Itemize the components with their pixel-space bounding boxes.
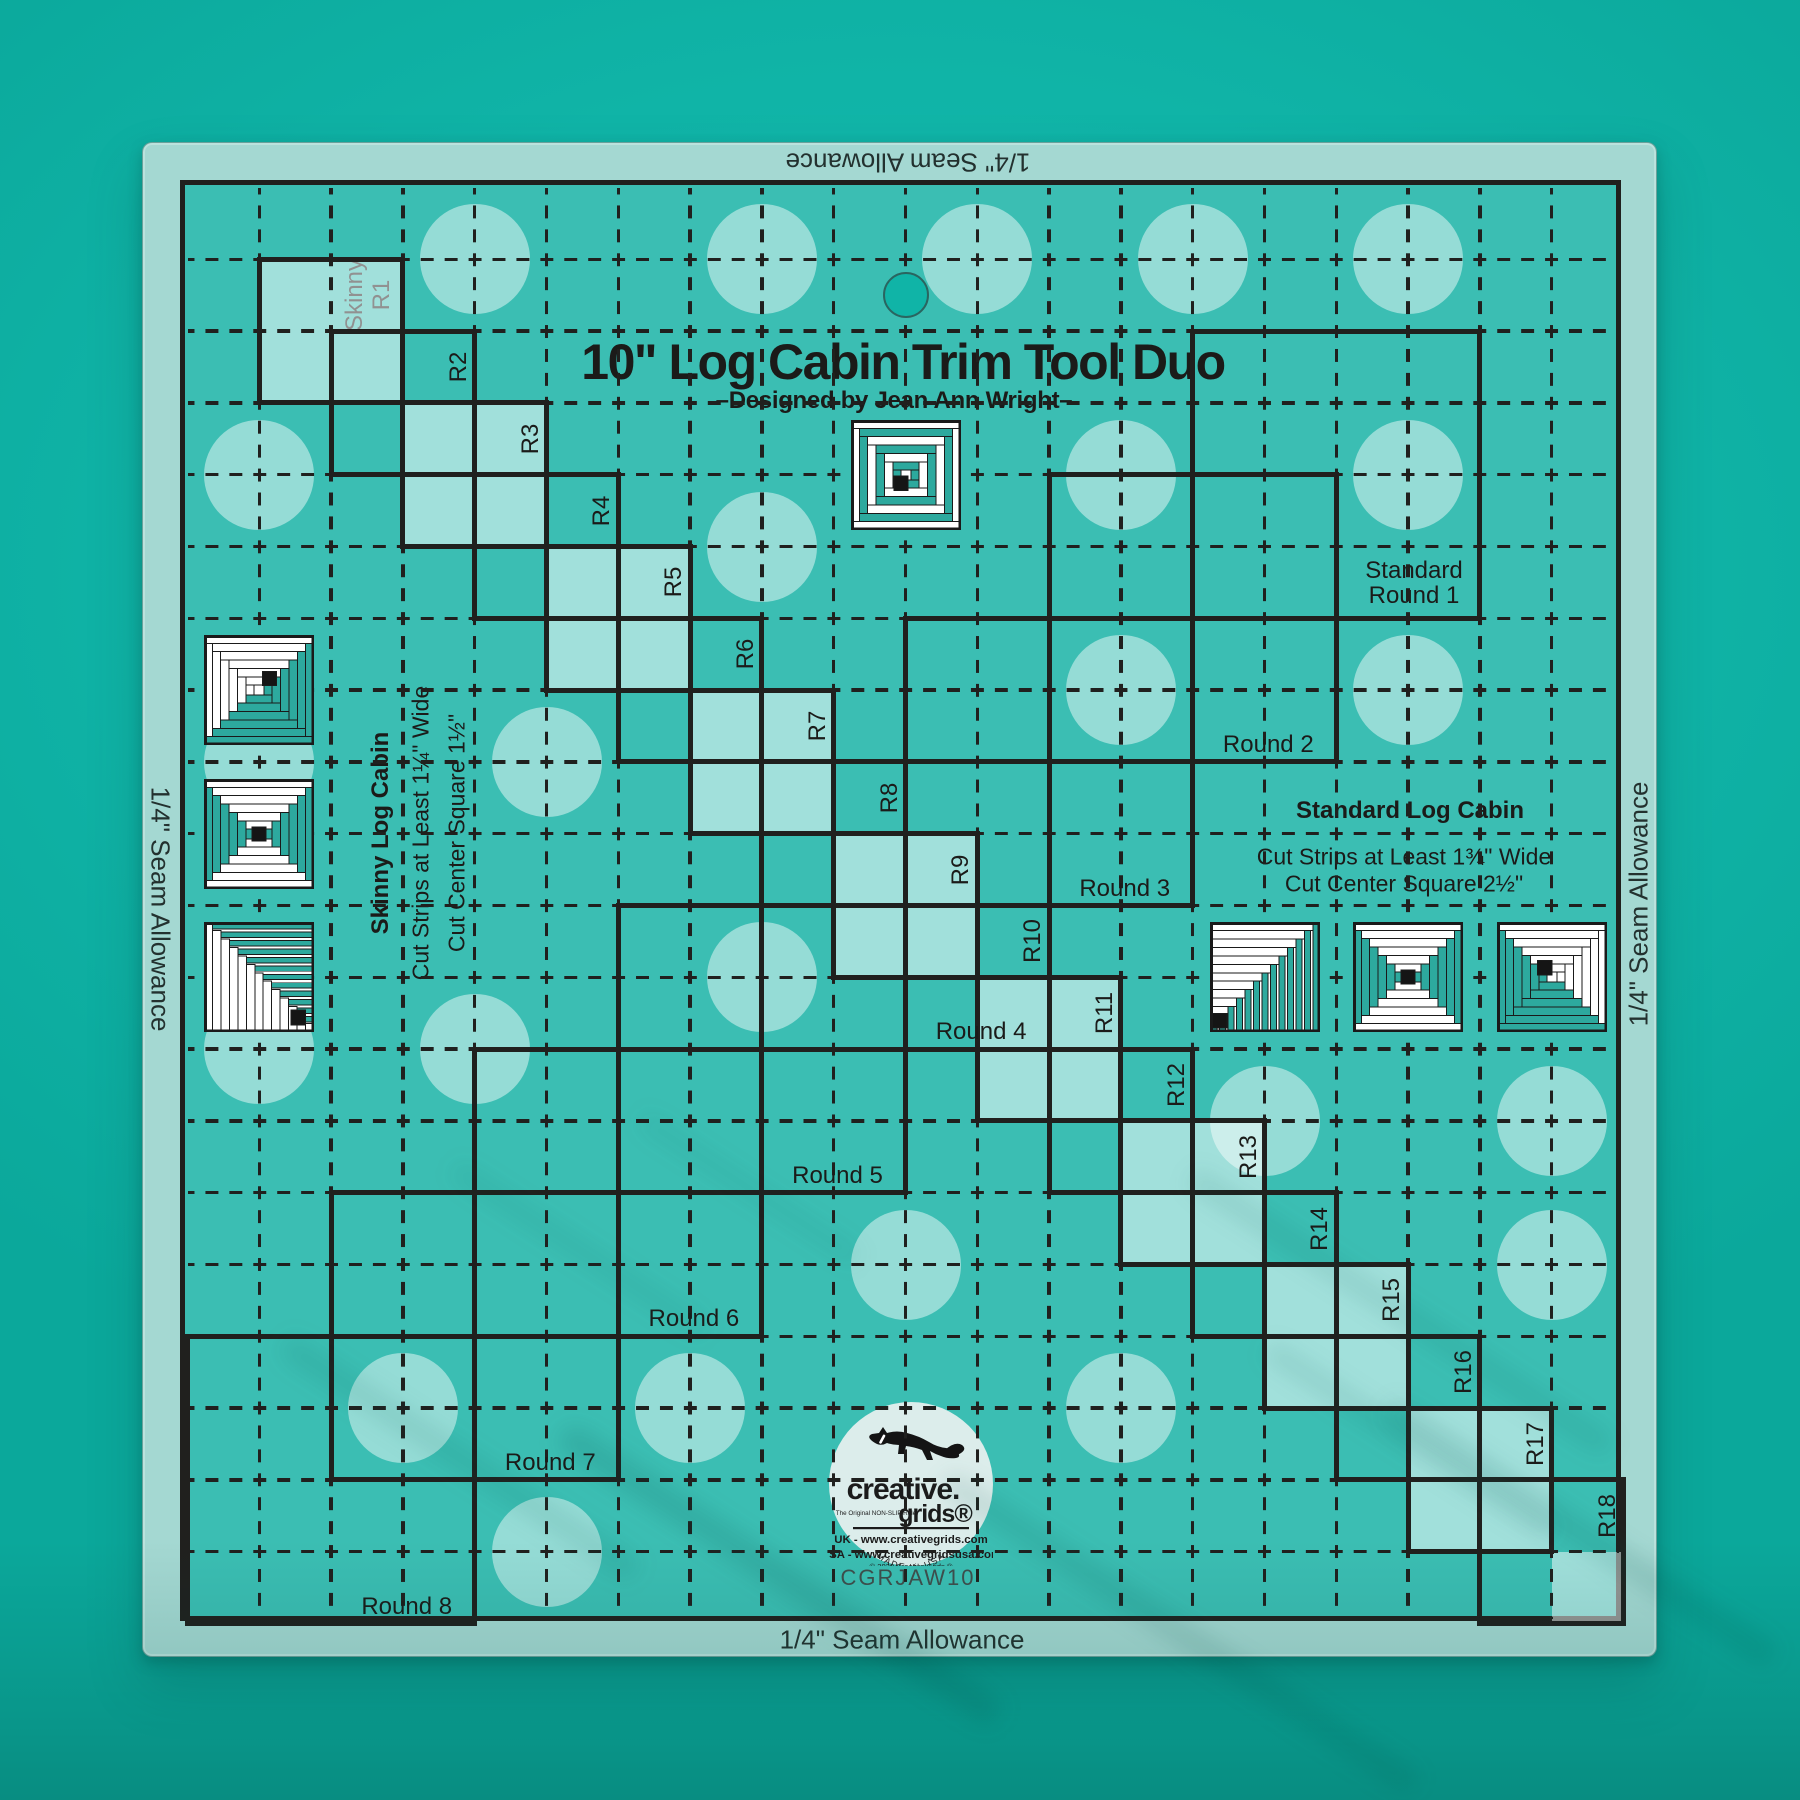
creative-grids-logo: creative. grids® The Original NON-SLIP R… — [829, 1402, 993, 1566]
log-cabin-block-log-cabin-white-top-left — [204, 635, 314, 745]
grip-dot — [204, 707, 314, 817]
round1-word2: Round 1 — [1369, 582, 1460, 609]
round-label: Round 3 — [1079, 875, 1170, 903]
skinny-step-square — [1262, 1262, 1411, 1411]
skinny-step-label-r1: Skinny R1 — [341, 259, 395, 331]
skinny-step-square — [616, 616, 765, 765]
grip-dot — [1353, 420, 1463, 530]
grid-line-vertical — [1047, 188, 1051, 1619]
frosted-cell — [834, 906, 906, 978]
block-icon — [204, 779, 314, 889]
frosted-cell — [403, 475, 475, 547]
hanging-hole — [883, 272, 929, 318]
grid-line-horizontal — [188, 832, 1619, 836]
frosted-cell — [1193, 1193, 1265, 1265]
grip-dot — [707, 204, 817, 314]
standard-heading: Standard Log Cabin — [1296, 797, 1524, 825]
grip-dot — [1353, 635, 1463, 745]
block-icon — [851, 420, 961, 530]
frosted-cell — [331, 331, 403, 403]
skinny-step-square — [544, 544, 693, 693]
standard-instruction-2: Cut Center Square 2½" — [1285, 871, 1523, 898]
frosted-cell — [690, 762, 762, 834]
quilting-ruler: 1/4" Seam Allowance 1/4" Seam Allowance … — [142, 142, 1657, 1657]
frosted-cell — [690, 690, 762, 762]
grip-dot — [1066, 1353, 1176, 1463]
grip-dot — [1497, 1210, 1607, 1320]
block-icon — [1497, 922, 1607, 1032]
round-square — [759, 759, 1051, 1051]
skinny-step-label: R14 — [1306, 1207, 1334, 1251]
round-label: Round 2 — [1223, 731, 1314, 759]
skinny-step-label: R8 — [876, 782, 904, 813]
frosted-cell — [1049, 977, 1121, 1049]
round-square — [1190, 329, 1482, 621]
round-square — [329, 1190, 621, 1482]
skinny-step-r1: R1 — [368, 280, 395, 311]
grip-dot — [1210, 1066, 1320, 1176]
grip-dot — [204, 420, 314, 530]
logo-uk-url: UK - www.creativegrids.com — [834, 1534, 987, 1546]
log-cabin-block-diagonal-strips — [204, 922, 314, 1032]
grip-dot — [707, 492, 817, 602]
round-square — [616, 903, 908, 1195]
frosted-cell — [1408, 1408, 1480, 1480]
logo-divider — [853, 1527, 969, 1529]
skinny-step-label: R4 — [588, 495, 616, 526]
grip-dot — [1353, 204, 1463, 314]
grip-dot — [707, 922, 817, 1032]
skinny-instruction-1: Cut Strips at Least 1¼" Wide — [408, 686, 435, 981]
grip-dot — [1066, 420, 1176, 530]
skinny-step-label: R11 — [1091, 992, 1119, 1034]
skinny-step-square — [759, 759, 908, 908]
block-icon — [204, 635, 314, 745]
grid-line-vertical — [1119, 188, 1123, 1619]
frosted-cell — [1480, 1408, 1552, 1480]
frosted-cell — [1336, 1265, 1408, 1337]
skinny-step-prefix: Skinny — [341, 259, 368, 331]
skinny-step-label: R3 — [517, 423, 545, 454]
round-square — [903, 616, 1195, 908]
frosted-cell — [547, 547, 619, 619]
frosted-cell — [834, 834, 906, 906]
frosted-cell — [977, 1049, 1049, 1121]
grip-dot — [1066, 635, 1176, 745]
grip-dot — [635, 1353, 745, 1463]
log-cabin-block-log-cabin-teal-bottom-left — [1497, 922, 1607, 1032]
round-label: Round 4 — [936, 1018, 1027, 1046]
grip-dot — [204, 994, 314, 1104]
round-label: Round 8 — [361, 1593, 452, 1621]
grip-dot — [1138, 204, 1248, 314]
skinny-step-square — [1047, 1047, 1196, 1196]
grip-dot — [420, 204, 530, 314]
frosted-cell — [977, 977, 1049, 1049]
skinny-step-label: R15 — [1378, 1278, 1406, 1322]
round1-word1: Standard — [1365, 557, 1462, 584]
skinny-step-square — [400, 400, 549, 549]
frosted-cell — [762, 690, 834, 762]
round-square — [1047, 472, 1339, 764]
frosted-cell — [547, 618, 619, 690]
frosted-cell — [1049, 1049, 1121, 1121]
designer-credit: –Designed by Jean Ann Wright– — [716, 387, 1073, 415]
grid-line-horizontal — [188, 473, 1619, 477]
skinny-step-square — [1334, 1334, 1483, 1483]
frosted-cell — [403, 403, 475, 475]
grid-line-horizontal — [188, 1047, 1619, 1051]
grip-dot — [492, 1497, 602, 1607]
grid-line-vertical — [1191, 188, 1195, 1619]
skinny-step-label: R10 — [1019, 919, 1047, 963]
skinny-step-square — [1477, 1477, 1626, 1626]
skinny-step-label: R12 — [1163, 1063, 1191, 1107]
skinny-step-square — [903, 903, 1052, 1052]
grid-line-horizontal — [188, 904, 1619, 908]
grid-line-vertical — [545, 188, 549, 1619]
round-label: Round 7 — [505, 1449, 596, 1477]
frosted-cell — [1193, 1121, 1265, 1193]
skinny-step-square — [329, 329, 478, 478]
grip-dot — [492, 707, 602, 817]
skinny-step-label: R5 — [660, 567, 688, 598]
frosted-cell — [1480, 1480, 1552, 1552]
skinny-step-square — [1406, 1406, 1555, 1555]
skinny-step-square — [688, 688, 837, 837]
skinny-step-square — [1118, 1118, 1267, 1267]
seam-allowance-text-top: 1/4" Seam Allowance — [786, 147, 1031, 178]
frosted-cell — [475, 403, 547, 475]
log-cabin-block-diagonal-strips-mirrored — [1210, 922, 1320, 1032]
grip-dot — [851, 1210, 961, 1320]
log-cabin-block-concentric-rings — [851, 420, 961, 530]
skinny-instruction-2: Cut Center Square 1½" — [444, 714, 471, 952]
log-cabin-block-courthouse-steps — [1353, 922, 1463, 1032]
skinny-step-label: R17 — [1522, 1422, 1550, 1466]
skinny-step-square — [1190, 1190, 1339, 1339]
grid-line-horizontal — [188, 760, 1619, 764]
skinny-step-square — [975, 975, 1124, 1124]
frosted-cell — [1121, 1193, 1193, 1265]
grid-line-horizontal — [188, 1263, 1619, 1267]
frosted-cell — [1408, 1480, 1480, 1552]
frosted-cell — [475, 475, 547, 547]
grid-line-horizontal — [188, 258, 1619, 262]
skinny-step-label: R7 — [804, 711, 832, 742]
grid-line-vertical — [617, 188, 621, 1619]
frosted-cell — [618, 547, 690, 619]
grid-line-vertical — [473, 188, 477, 1619]
grid-line-horizontal — [188, 401, 1619, 405]
block-icon — [1353, 922, 1463, 1032]
grip-dot — [348, 1353, 458, 1463]
grip-dot — [1497, 1066, 1607, 1176]
standard-instruction-1: Cut Strips at Least 1¾" Wide — [1257, 844, 1552, 871]
ruler-grid-area: 10" Log Cabin Trim Tool Duo –Designed by… — [180, 180, 1621, 1621]
skinny-step-square — [257, 257, 406, 406]
grid-line-horizontal — [188, 976, 1619, 980]
grid-line-vertical — [258, 188, 262, 1619]
skinny-heading: Skinny Log Cabin — [367, 732, 395, 935]
frosted-cell — [259, 331, 331, 403]
product-code: CGRJAW10 — [841, 1565, 976, 1591]
grip-dot — [420, 994, 530, 1104]
round-label: Round 5 — [792, 1162, 883, 1190]
skinny-step-square — [831, 831, 980, 980]
skinny-step-label: R9 — [947, 854, 975, 885]
skinny-step-square — [472, 472, 621, 621]
block-icon — [204, 922, 314, 1032]
grid-line-vertical — [1335, 188, 1339, 1619]
grid-line-vertical — [1478, 188, 1482, 1619]
frosted-cell — [906, 906, 978, 978]
skinny-step-label: R16 — [1450, 1350, 1478, 1394]
grid-line-vertical — [1406, 188, 1410, 1619]
grid-line-horizontal — [188, 1191, 1619, 1195]
grid-line-horizontal — [188, 1119, 1619, 1123]
skinny-step-label: R6 — [732, 639, 760, 670]
grip-dot — [922, 204, 1032, 314]
frosted-cell — [1552, 1552, 1624, 1624]
round-square — [185, 1334, 477, 1626]
grid-line-horizontal — [188, 688, 1619, 692]
round-label: Round 6 — [649, 1305, 740, 1333]
frosted-cell — [906, 834, 978, 906]
skinny-step-label: R13 — [1235, 1135, 1263, 1179]
grid-line-vertical — [760, 188, 764, 1619]
grid-line-horizontal — [188, 617, 1619, 621]
grid-line-horizontal — [188, 1335, 1619, 1339]
frosted-cell — [618, 618, 690, 690]
seam-allowance-text-right: 1/4" Seam Allowance — [1624, 782, 1655, 1027]
log-cabin-block-courthouse-steps — [204, 779, 314, 889]
round-square — [472, 1047, 764, 1339]
product-photo: 1/4" Seam Allowance 1/4" Seam Allowance … — [0, 0, 1800, 1800]
block-icon — [1210, 922, 1320, 1032]
frosted-cell — [1336, 1336, 1408, 1408]
frosted-cell — [762, 762, 834, 834]
skinny-step-label: R18 — [1594, 1494, 1622, 1538]
grid-line-vertical — [401, 188, 405, 1619]
frosted-cell — [1265, 1336, 1337, 1408]
frosted-cell — [1121, 1121, 1193, 1193]
grid-line-horizontal — [188, 329, 1619, 333]
skinny-step-label: R2 — [445, 352, 473, 383]
frosted-cell — [1265, 1265, 1337, 1337]
logo-usa-url: USA - www.creativegridsusa.com — [829, 1549, 993, 1561]
frosted-cell — [259, 259, 331, 331]
grid-line-horizontal — [188, 545, 1619, 549]
product-title: 10" Log Cabin Trim Tool Duo — [581, 333, 1224, 391]
grid-line-vertical — [1550, 188, 1554, 1619]
round-label-1: Standard Round 1 — [1365, 558, 1462, 608]
seam-allowance-text-bottom: 1/4" Seam Allowance — [780, 1625, 1025, 1656]
grid-line-vertical — [688, 188, 692, 1619]
logo-tagline: The Original NON-SLIP Ruler — [836, 1510, 918, 1517]
grid-line-vertical — [1263, 188, 1267, 1619]
frosted-cell — [331, 259, 403, 331]
seam-allowance-text-left: 1/4" Seam Allowance — [145, 787, 176, 1032]
grid-line-vertical — [329, 188, 333, 1619]
